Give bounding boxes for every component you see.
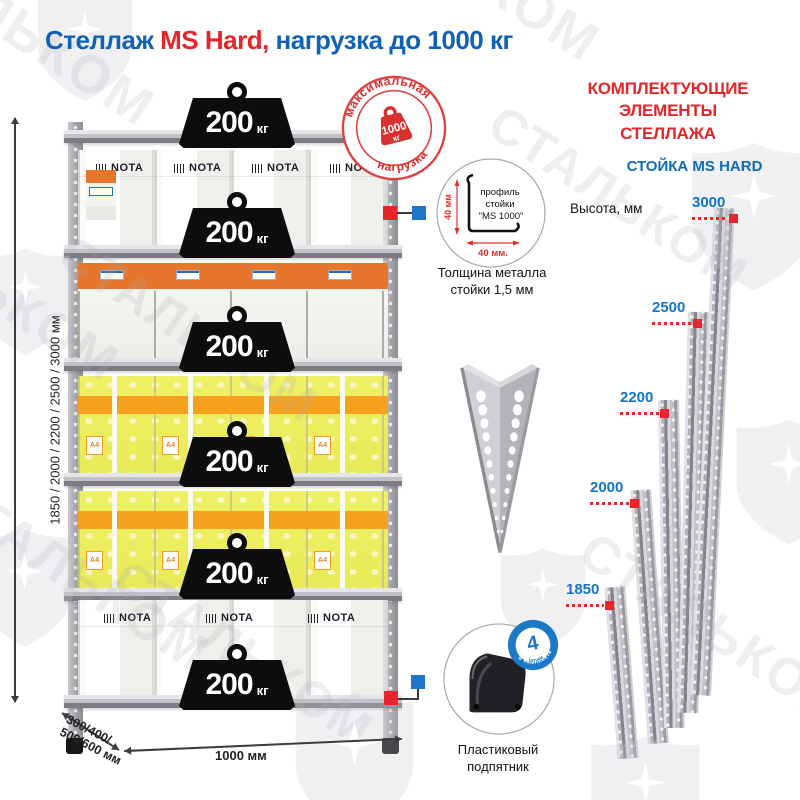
quantity-badge: в комплекте 4 штуки (501, 613, 565, 677)
post-height-label: 1850 (566, 581, 614, 610)
shield-watermark-icon (733, 415, 800, 549)
weight-unit: кг (257, 683, 269, 698)
weight-body: 200кг (179, 549, 295, 599)
weight-unit: кг (257, 572, 269, 587)
post-height-label: 3000 (692, 194, 738, 223)
post-height-label: 2500 (652, 299, 702, 328)
post-profile-detail: 40 мм 40 мм. профиль стойки "MS 1000" (435, 157, 547, 269)
a4-label: A4 (314, 436, 331, 455)
barcode-icon (308, 614, 319, 623)
components-heading-line1: КОМПЛЕКТУЮЩИЕ (572, 78, 764, 100)
dotted-leader (652, 322, 692, 325)
weight-unit: кг (257, 231, 269, 246)
weight-value: 200 (206, 445, 253, 479)
barcode-icon (330, 164, 341, 173)
side-box (86, 170, 116, 220)
box-lid-label (100, 270, 124, 280)
barcode-icon (104, 614, 115, 623)
foot-caption-line2: подпятник (434, 759, 562, 776)
post-height-label: 2200 (620, 389, 669, 418)
profile-caption-2: стойки (485, 199, 514, 210)
callout-marker-blue (412, 206, 426, 220)
profile-caption-1: профиль (480, 187, 519, 198)
weight-unit: кг (257, 460, 269, 475)
callout-marker-red (383, 206, 397, 220)
weight-value: 200 (206, 557, 253, 591)
width-label: 1000 мм (215, 748, 267, 763)
barcode-icon (252, 164, 263, 173)
box-label: NOTA (104, 612, 151, 624)
barcode-icon (206, 614, 217, 623)
dotted-leader (590, 502, 629, 505)
callout-line (398, 698, 419, 700)
shelf-load-weight-icon: 200кг (179, 82, 295, 148)
weight-body: 200кг (179, 437, 295, 487)
post-height-value: 3000 (692, 194, 738, 211)
box-lid-label (252, 270, 276, 280)
thickness-note-line2: стойки 1,5 мм (430, 282, 554, 299)
shelf-load-weight-icon: 200кг (179, 192, 295, 258)
weight-body: 200кг (179, 660, 295, 710)
thickness-note: Толщина металла стойки 1,5 мм (430, 265, 554, 299)
page-title: Стеллаж MS Hard, нагрузка до 1000 кг (45, 25, 513, 56)
height-units-label: Высота, мм (570, 201, 642, 216)
weight-value: 200 (206, 668, 253, 702)
box-lid-label (176, 270, 200, 280)
shelf-load-weight-icon: 200кг (179, 421, 295, 487)
post-marker (693, 319, 702, 328)
box-brand-text: NOTA (119, 612, 151, 624)
weight-unit: кг (257, 345, 269, 360)
thickness-note-line1: Толщина металла (430, 265, 554, 282)
barcode-icon (174, 164, 185, 173)
box-brand-text: NOTA (221, 612, 253, 624)
height-options-label: 1850 / 2000 / 2200 / 2500 / 3000 мм (48, 315, 63, 524)
callout-marker-red (384, 691, 398, 705)
post-marker (660, 409, 669, 418)
components-heading-line2: ЭЛЕМЕНТЫ СТЕЛЛАЖА (572, 100, 764, 145)
a4-label: A4 (86, 436, 103, 455)
post-height-label: 2000 (590, 479, 639, 508)
profile-caption-3: "MS 1000" (479, 211, 524, 222)
a4-label: A4 (314, 551, 331, 570)
shelf-load-weight-icon: 200кг (179, 533, 295, 599)
post-1850 (604, 584, 639, 759)
weight-body: 200кг (179, 98, 295, 148)
a4-label: A4 (162, 436, 179, 455)
post-height-value: 1850 (566, 581, 614, 598)
box-lid-label (328, 270, 352, 280)
callout-marker-blue (411, 675, 425, 689)
shelf-load-weight-icon: 200кг (179, 644, 295, 710)
title-part-3: нагрузка до 1000 кг (269, 25, 513, 55)
box-label: NOTA (174, 162, 221, 174)
corner-post-image (452, 362, 548, 562)
box-brand-text: NOTA (267, 162, 299, 174)
weight-unit: кг (257, 121, 269, 136)
post-subheading: СТОЙКА MS HARD (612, 158, 777, 175)
profile-dim-vertical: 40 мм (443, 194, 453, 220)
title-part-2: MS Hard, (160, 25, 269, 55)
box-label: NOTA (252, 162, 299, 174)
weight-body: 200кг (179, 322, 295, 372)
a4-label: A4 (86, 551, 103, 570)
post-marker (729, 214, 738, 223)
box-label: NOTA (206, 612, 253, 624)
a4-label: A4 (162, 551, 179, 570)
shelf-load-weight-icon: 200кг (179, 306, 295, 372)
post-marker (605, 601, 614, 610)
box-label: NOTA (308, 612, 355, 624)
dotted-leader (566, 604, 604, 607)
post-height-value: 2000 (590, 479, 639, 496)
post-height-value: 2200 (620, 389, 669, 406)
post-marker (630, 499, 639, 508)
foot-caption-line1: Пластиковый (434, 742, 562, 759)
dotted-leader (692, 217, 728, 220)
components-heading: КОМПЛЕКТУЮЩИЕ ЭЛЕМЕНТЫ СТЕЛЛАЖА (572, 78, 764, 145)
box-brand-text: NOTA (323, 612, 355, 624)
plastic-foot-caption: Пластиковый подпятник (434, 742, 562, 776)
box-brand-text: NOTA (189, 162, 221, 174)
height-dimension-line (14, 118, 16, 702)
shield-watermark-icon (588, 732, 703, 800)
post-height-value: 2500 (652, 299, 702, 316)
weight-value: 200 (206, 216, 253, 250)
dotted-leader (620, 412, 659, 415)
title-part-1: Стеллаж (45, 25, 160, 55)
weight-value: 200 (206, 106, 253, 140)
infographic-canvas: СТАЛЬКОМ СТАЛЬКОМ СТАЛЬКОМ СТАЛЬКОМ СТАЛ… (0, 0, 800, 800)
profile-dim-horizontal: 40 мм. (478, 248, 508, 259)
weight-value: 200 (206, 330, 253, 364)
weight-body: 200кг (179, 208, 295, 258)
